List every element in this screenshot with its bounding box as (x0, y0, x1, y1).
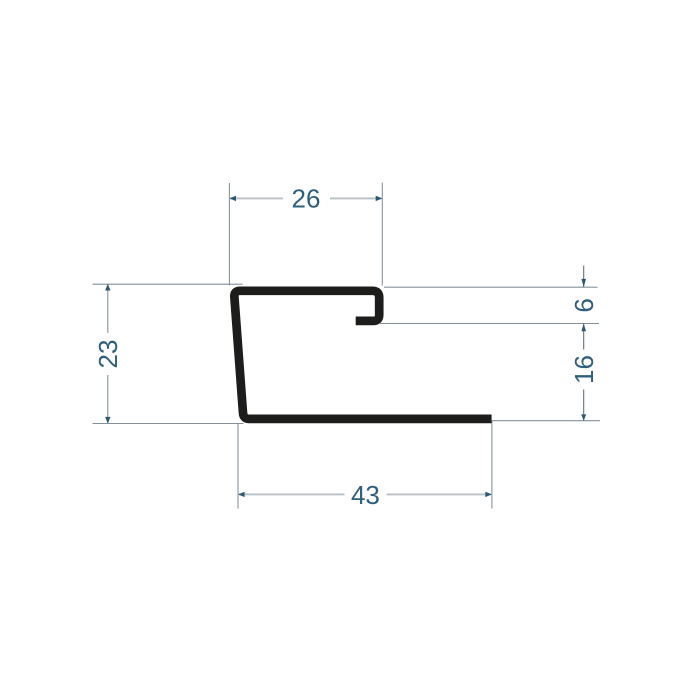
svg-text:6: 6 (569, 298, 599, 312)
svg-text:43: 43 (351, 480, 380, 510)
svg-text:26: 26 (292, 184, 321, 214)
svg-text:16: 16 (569, 355, 599, 384)
svg-text:23: 23 (93, 340, 123, 369)
